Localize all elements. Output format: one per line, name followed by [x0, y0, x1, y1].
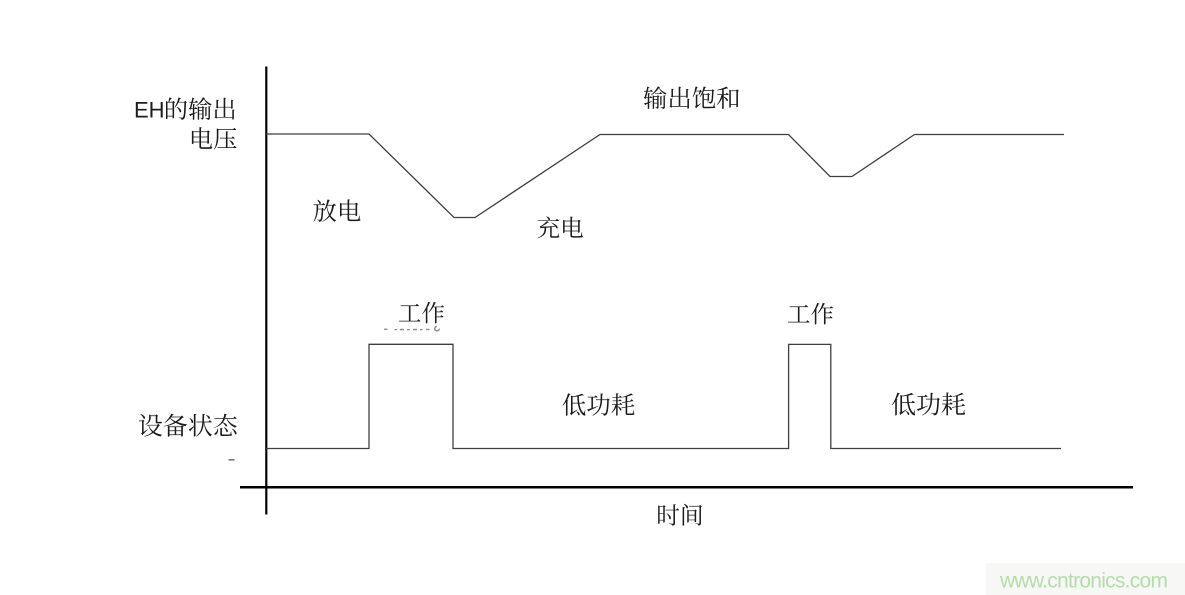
svg-text:www.cntronics.com: www.cntronics.com [999, 570, 1168, 593]
svg-text:EH: EH [134, 98, 165, 123]
